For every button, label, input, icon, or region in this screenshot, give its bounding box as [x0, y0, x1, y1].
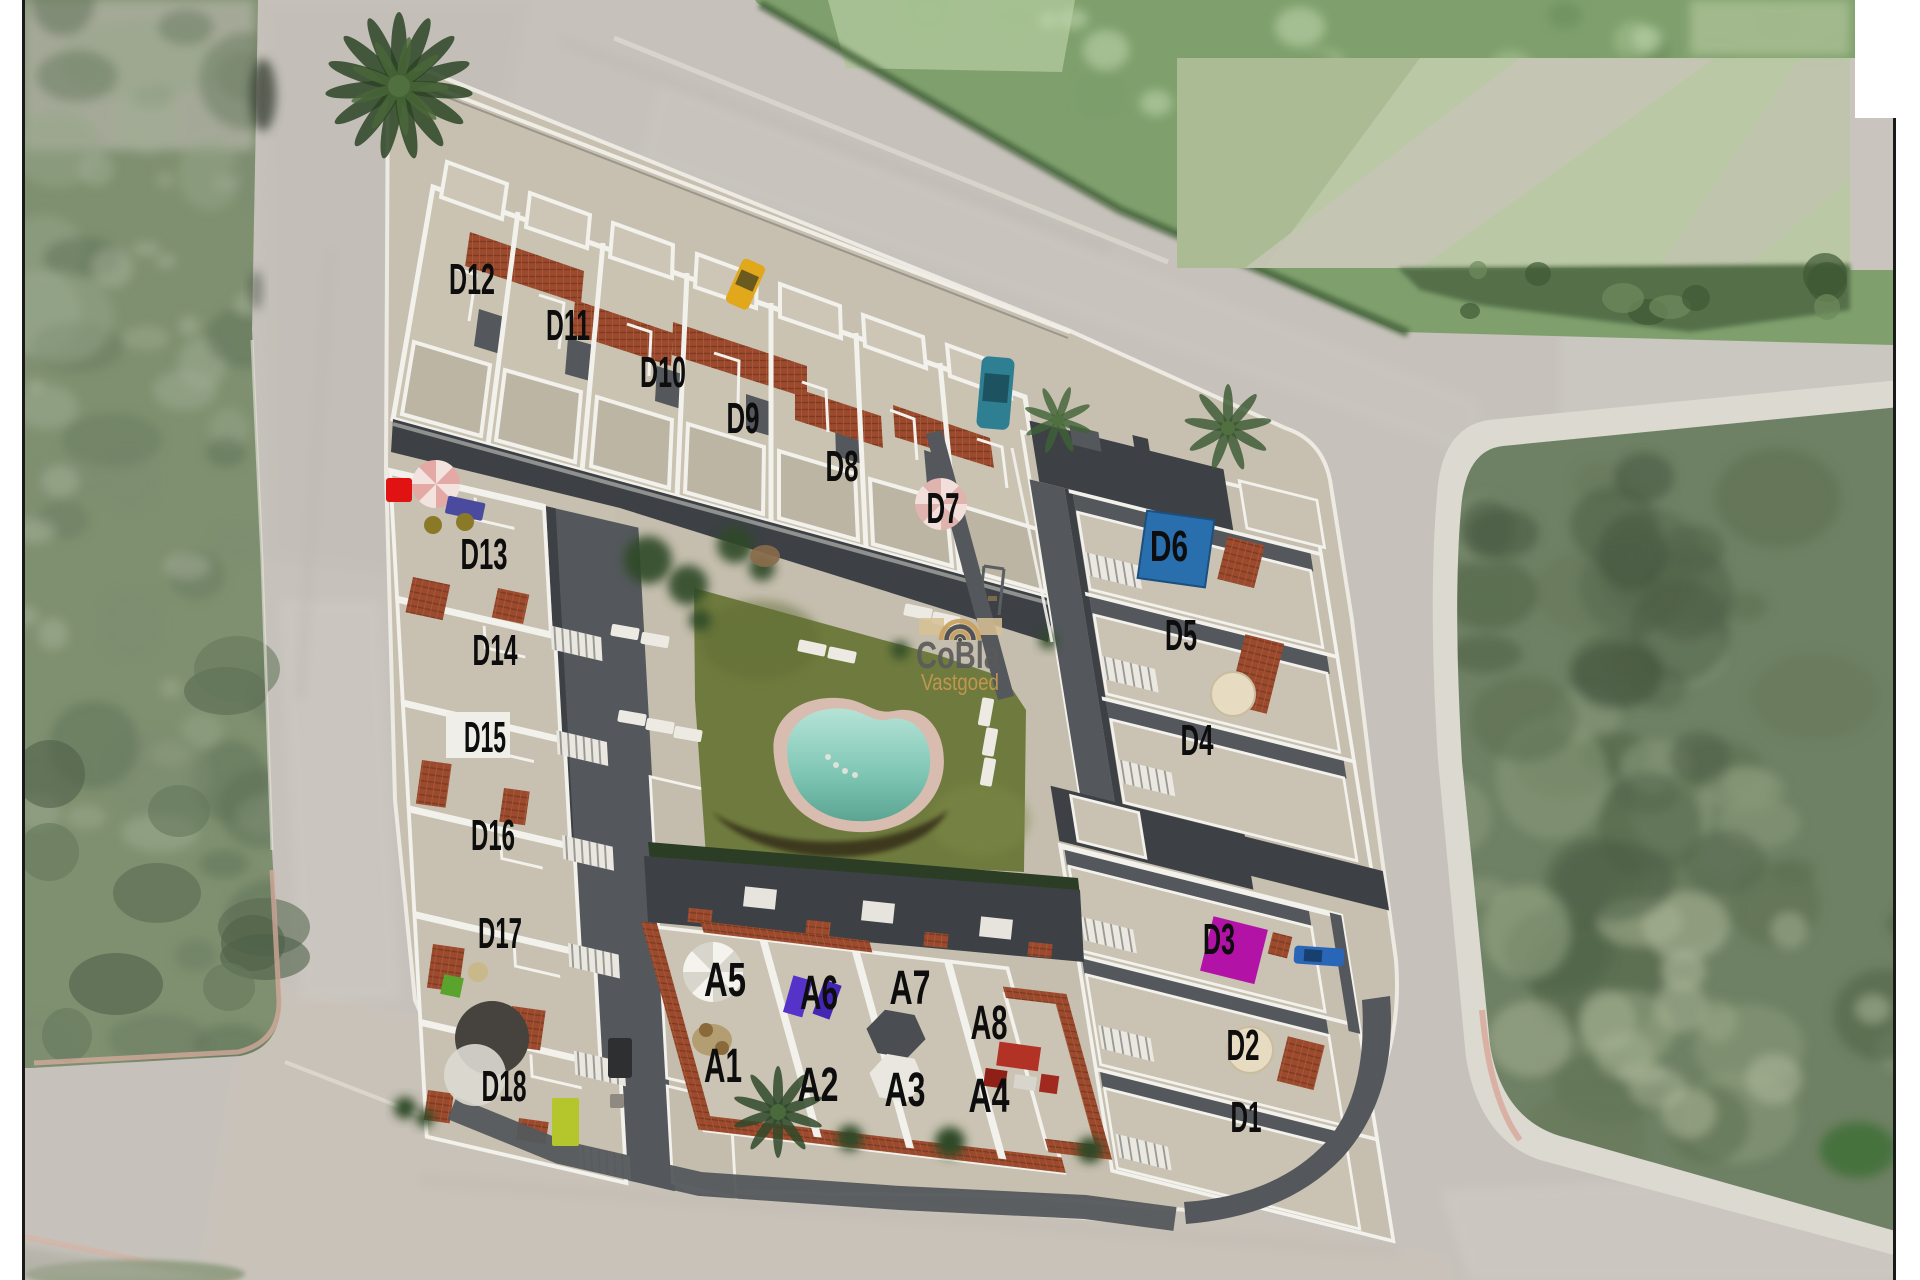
- svg-text:A1: A1: [704, 1040, 742, 1093]
- svg-text:A3: A3: [885, 1064, 926, 1117]
- svg-text:A7: A7: [890, 962, 931, 1015]
- svg-text:D10: D10: [640, 348, 686, 397]
- svg-text:D14: D14: [473, 626, 518, 675]
- svg-text:D1: D1: [1231, 1093, 1262, 1142]
- svg-text:D17: D17: [478, 909, 522, 958]
- svg-text:D12: D12: [449, 255, 495, 304]
- svg-text:D15: D15: [464, 713, 506, 762]
- svg-text:A8: A8: [971, 997, 1008, 1050]
- svg-text:A2: A2: [798, 1059, 839, 1112]
- svg-text:D8: D8: [826, 442, 859, 491]
- svg-text:D7: D7: [927, 484, 960, 533]
- svg-text:D6: D6: [1150, 522, 1188, 571]
- svg-text:D9: D9: [727, 394, 760, 443]
- svg-text:D13: D13: [461, 530, 508, 579]
- svg-text:A6: A6: [800, 967, 838, 1020]
- svg-text:Vastgoed: Vastgoed: [921, 669, 999, 695]
- svg-text:D4: D4: [1181, 716, 1214, 765]
- svg-text:D2: D2: [1227, 1021, 1260, 1070]
- svg-text:D16: D16: [471, 811, 515, 860]
- svg-text:D5: D5: [1165, 611, 1197, 660]
- svg-text:D11: D11: [546, 301, 590, 350]
- svg-text:D3: D3: [1203, 915, 1235, 964]
- svg-text:D18: D18: [482, 1062, 527, 1111]
- svg-text:A4: A4: [969, 1070, 1010, 1123]
- svg-text:A5: A5: [704, 954, 746, 1007]
